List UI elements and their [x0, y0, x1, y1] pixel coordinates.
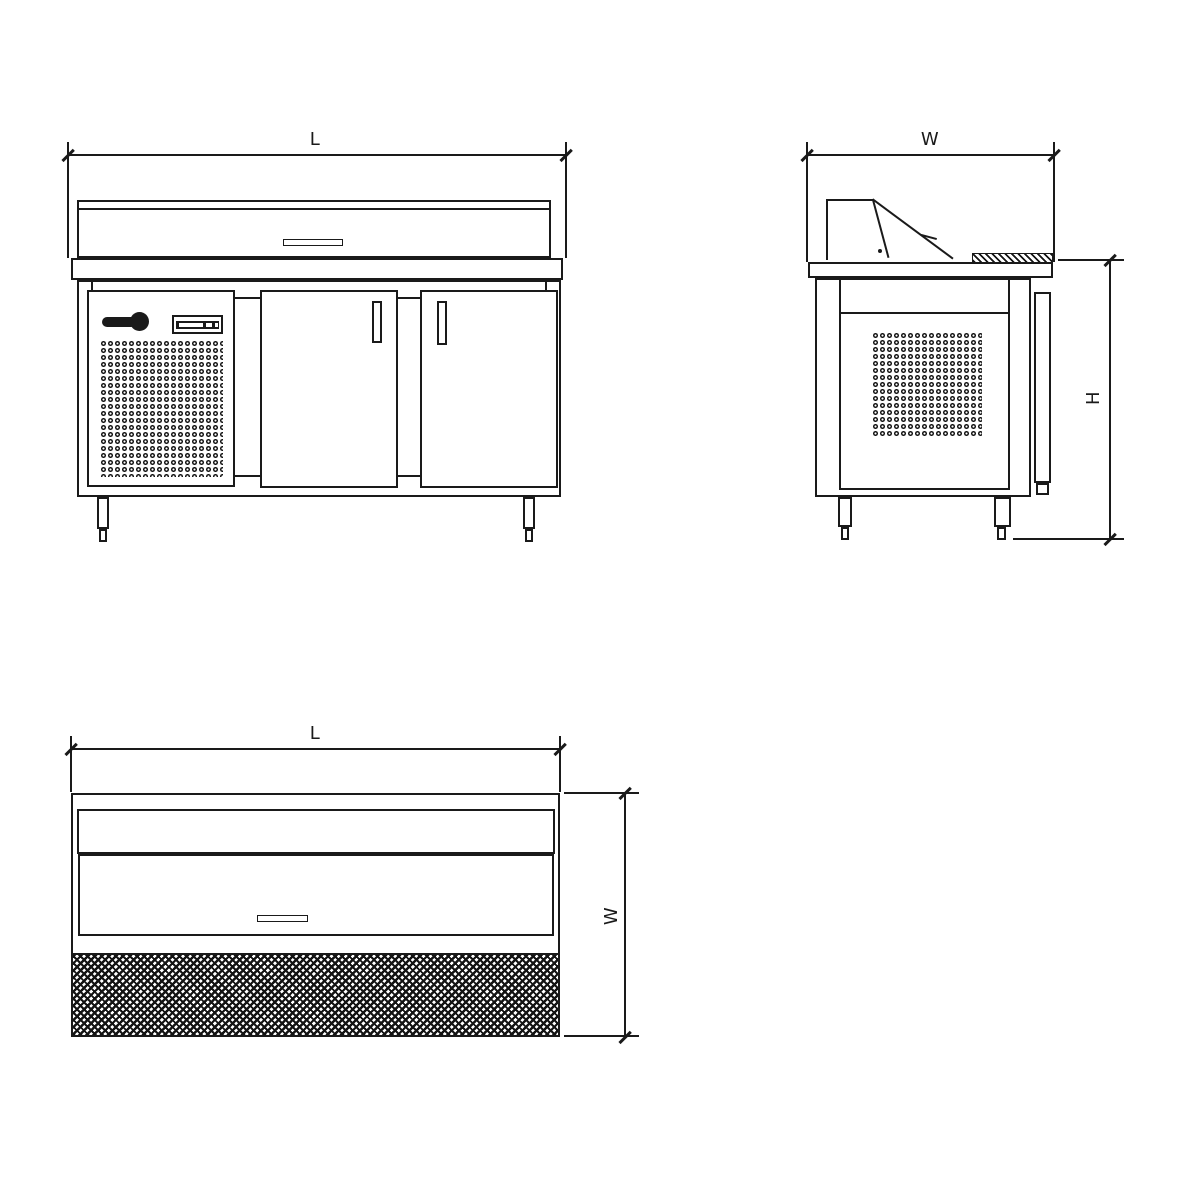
top-plan-view: L W — [0, 0, 1181, 1181]
dim-line-width — [624, 793, 626, 1037]
dim-label-width: W — [602, 898, 622, 934]
plan-rail-top-strip — [77, 809, 555, 854]
plan-lid-panel — [78, 854, 554, 936]
dim-line-length — [71, 748, 560, 750]
technical-drawing-canvas: L — [0, 0, 1181, 1181]
dim-extension-line — [70, 736, 72, 792]
plan-lid-handle — [257, 915, 308, 922]
dim-extension-line — [559, 736, 561, 792]
dim-label-length: L — [297, 724, 333, 744]
plan-worktop-hatch — [73, 953, 558, 1035]
